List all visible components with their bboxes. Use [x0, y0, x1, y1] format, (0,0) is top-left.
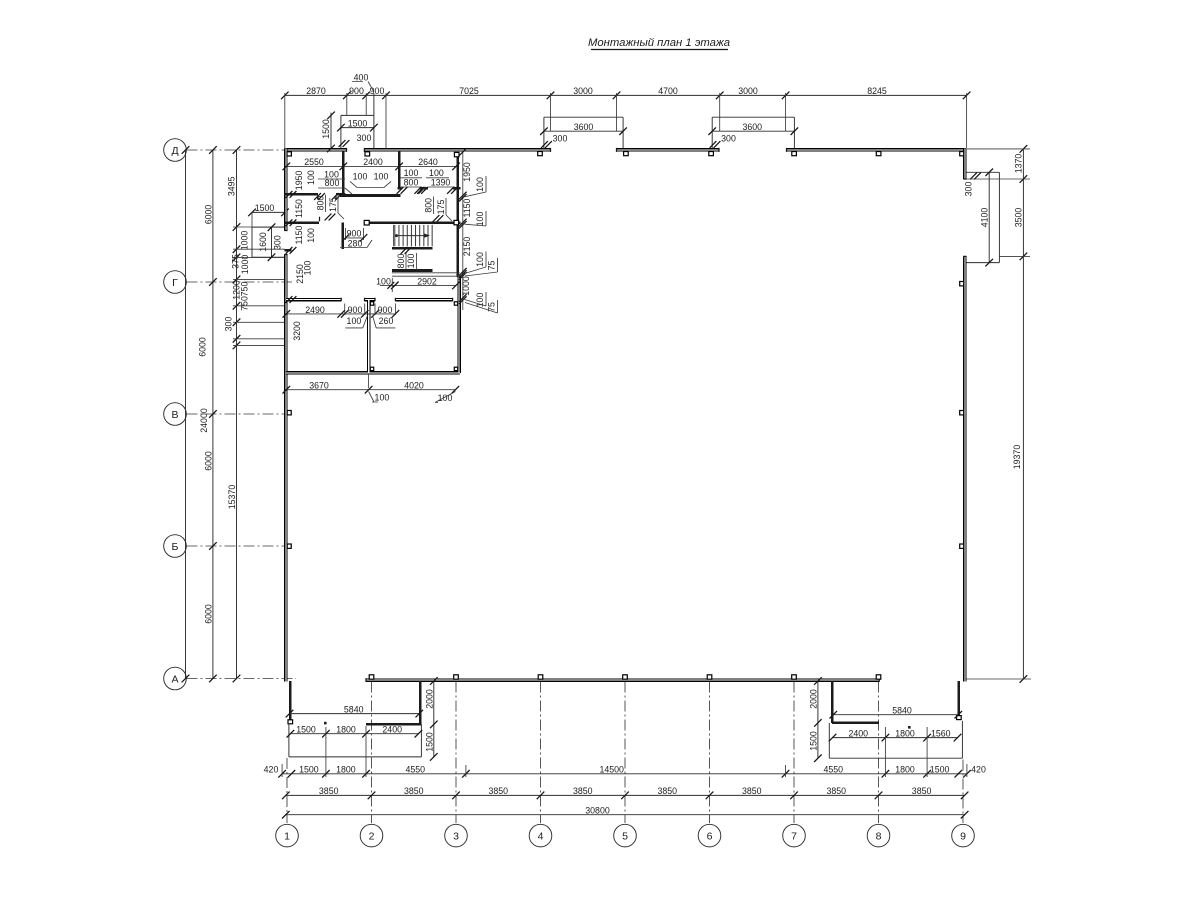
svg-text:9: 9: [960, 830, 966, 842]
svg-text:900: 900: [349, 86, 364, 96]
svg-text:В: В: [171, 409, 178, 421]
svg-text:260: 260: [379, 316, 394, 326]
svg-text:6: 6: [707, 830, 713, 842]
svg-text:300: 300: [273, 235, 283, 250]
svg-text:3850: 3850: [827, 786, 847, 796]
svg-text:Монтажный план 1 этажа: Монтажный план 1 этажа: [588, 37, 730, 49]
svg-text:1560: 1560: [931, 728, 951, 738]
svg-text:6000: 6000: [204, 604, 214, 624]
svg-text:300: 300: [963, 182, 973, 197]
svg-text:100: 100: [475, 212, 485, 227]
svg-text:100: 100: [375, 392, 390, 402]
svg-text:5: 5: [622, 830, 628, 842]
svg-text:А: А: [171, 673, 178, 685]
svg-text:3850: 3850: [404, 786, 424, 796]
svg-text:3600: 3600: [574, 122, 594, 132]
svg-text:1800: 1800: [895, 728, 915, 738]
svg-text:375: 375: [231, 254, 241, 269]
svg-text:3000: 3000: [573, 86, 593, 96]
svg-text:3000: 3000: [738, 86, 758, 96]
svg-text:300: 300: [721, 134, 736, 144]
svg-text:2000: 2000: [809, 689, 819, 709]
svg-text:3850: 3850: [489, 786, 509, 796]
svg-text:1950: 1950: [462, 162, 472, 182]
svg-text:6000: 6000: [198, 337, 208, 357]
svg-text:2400: 2400: [363, 157, 383, 167]
svg-text:100: 100: [475, 252, 485, 267]
svg-text:1500: 1500: [424, 732, 434, 752]
svg-text:1800: 1800: [895, 765, 915, 775]
svg-text:100: 100: [475, 177, 485, 192]
svg-text:1: 1: [284, 830, 290, 842]
svg-text:100: 100: [347, 316, 362, 326]
svg-text:100: 100: [374, 172, 389, 182]
svg-text:2640: 2640: [418, 157, 438, 167]
svg-text:3: 3: [453, 830, 459, 842]
svg-text:2: 2: [369, 830, 375, 842]
svg-text:800: 800: [396, 254, 406, 269]
svg-text:175: 175: [328, 197, 338, 212]
svg-text:1000: 1000: [461, 276, 471, 296]
svg-text:1500: 1500: [296, 725, 316, 735]
svg-text:4700: 4700: [658, 86, 678, 96]
svg-text:3495: 3495: [226, 176, 236, 196]
svg-text:4020: 4020: [404, 381, 424, 391]
svg-text:4550: 4550: [824, 765, 844, 775]
svg-text:800: 800: [404, 177, 419, 187]
svg-text:100: 100: [303, 261, 313, 276]
svg-text:100: 100: [376, 276, 391, 286]
svg-text:2150: 2150: [462, 237, 472, 257]
svg-text:420: 420: [264, 765, 279, 775]
svg-text:100: 100: [306, 170, 316, 185]
svg-text:750: 750: [240, 296, 250, 311]
svg-text:1500: 1500: [809, 731, 819, 751]
svg-text:1000: 1000: [240, 231, 250, 251]
svg-text:3500: 3500: [1013, 208, 1023, 228]
svg-text:3850: 3850: [912, 786, 932, 796]
svg-text:3850: 3850: [319, 786, 339, 796]
svg-text:1390: 1390: [431, 177, 451, 187]
svg-text:750: 750: [240, 282, 250, 297]
svg-text:1500: 1500: [930, 765, 950, 775]
svg-text:19370: 19370: [1012, 445, 1022, 470]
svg-text:1600: 1600: [258, 232, 268, 252]
svg-text:2400: 2400: [382, 725, 402, 735]
svg-text:175: 175: [436, 200, 446, 215]
svg-text:4550: 4550: [406, 765, 426, 775]
svg-text:4: 4: [538, 830, 544, 842]
svg-text:8245: 8245: [867, 86, 887, 96]
svg-text:1800: 1800: [336, 765, 356, 775]
svg-text:300: 300: [357, 133, 372, 143]
svg-text:3850: 3850: [742, 786, 762, 796]
svg-text:1370: 1370: [1013, 154, 1023, 174]
svg-text:2550: 2550: [304, 157, 324, 167]
svg-text:6000: 6000: [204, 451, 214, 471]
svg-text:1950: 1950: [294, 171, 304, 191]
svg-text:3850: 3850: [573, 786, 593, 796]
svg-text:1150: 1150: [462, 198, 472, 217]
svg-text:1800: 1800: [336, 725, 356, 735]
svg-text:5840: 5840: [892, 706, 912, 716]
svg-text:14500: 14500: [599, 765, 624, 775]
svg-text:8: 8: [876, 830, 882, 842]
svg-text:300: 300: [224, 317, 234, 332]
svg-text:1500: 1500: [255, 203, 275, 213]
svg-text:300: 300: [553, 134, 568, 144]
svg-text:2000: 2000: [424, 689, 434, 709]
svg-text:3200: 3200: [292, 321, 302, 341]
svg-text:420: 420: [971, 765, 986, 775]
svg-text:100: 100: [406, 254, 416, 269]
svg-text:1500: 1500: [348, 119, 368, 129]
svg-text:1500: 1500: [299, 765, 319, 775]
svg-text:3670: 3670: [309, 381, 329, 391]
svg-text:4100: 4100: [979, 208, 989, 228]
svg-text:Б: Б: [172, 541, 179, 553]
svg-text:100: 100: [306, 228, 316, 243]
svg-text:Д: Д: [171, 145, 178, 157]
svg-text:800: 800: [424, 198, 434, 213]
svg-text:800: 800: [316, 196, 326, 211]
svg-text:Г: Г: [172, 277, 178, 289]
svg-text:1150: 1150: [294, 199, 304, 218]
svg-text:1500: 1500: [321, 119, 331, 139]
svg-text:2902: 2902: [417, 276, 437, 286]
svg-text:2400: 2400: [849, 728, 869, 738]
svg-text:5840: 5840: [344, 704, 364, 714]
svg-text:2870: 2870: [306, 86, 326, 96]
svg-text:800: 800: [325, 178, 340, 188]
svg-text:280: 280: [348, 238, 363, 248]
svg-text:15370: 15370: [227, 485, 237, 510]
svg-text:3850: 3850: [658, 786, 678, 796]
svg-text:7: 7: [791, 830, 797, 842]
svg-text:24000: 24000: [199, 408, 209, 433]
svg-text:75: 75: [487, 261, 497, 271]
svg-text:7025: 7025: [459, 86, 479, 96]
svg-text:100: 100: [353, 172, 368, 182]
svg-text:6000: 6000: [204, 205, 214, 225]
svg-text:3600: 3600: [743, 122, 763, 132]
svg-text:75: 75: [487, 302, 497, 312]
svg-text:1150: 1150: [294, 225, 304, 244]
svg-text:30800: 30800: [585, 806, 610, 816]
